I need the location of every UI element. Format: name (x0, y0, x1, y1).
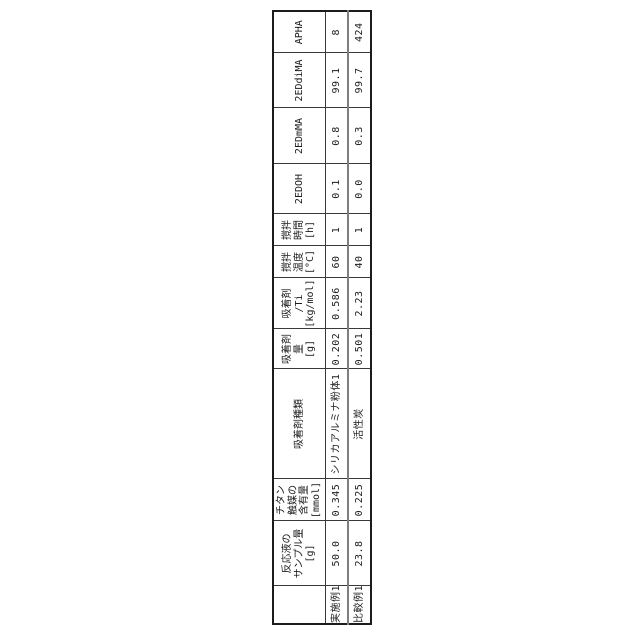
row-label-cell-comparative1: 比較例1 (348, 586, 371, 624)
rotated-table-figure: 反応液の サンプル量 [g] チタン 触媒の 含有量 [mmol] 吸着剤種類 … (272, 10, 372, 625)
header-cell-ti-catalyst-content: チタン 触媒の 含有量 [mmol] (273, 479, 325, 521)
header-line: 温度 (294, 247, 306, 278)
cell-example1-adsorbent-per-ti: 0.586 (325, 278, 348, 329)
page-canvas: { "figure": { "description_colors": { "b… (0, 0, 640, 640)
cell-comparative1-adsorbent-type: 活性炭 (348, 369, 371, 479)
patent-data-table: 反応液の サンプル量 [g] チタン 触媒の 含有量 [mmol] 吸着剤種類 … (272, 10, 372, 625)
header-line: [mmol] (311, 480, 323, 521)
header-cell-2edmma: 2EDmMA (273, 108, 325, 164)
header-line: APHA (294, 12, 306, 53)
header-line: 吸着剤 (282, 279, 294, 329)
cell-example1-adsorbent-type: シリカアルミナ粉体1 (325, 369, 348, 479)
header-line: [g] (305, 330, 317, 369)
header-line: 吸着剤 (282, 330, 294, 369)
table-row-comparative1: 比較例1 23.8 0.225 活性炭 0.501 2.23 40 1 0.0 … (348, 11, 371, 624)
cell-example1-2edoh: 0.1 (325, 164, 348, 214)
cell-example1-ti-catalyst-content: 0.345 (325, 479, 348, 521)
header-cell-2edoh: 2EDOH (273, 164, 325, 214)
cell-example1-apha: 8 (325, 11, 348, 53)
header-line: サンプル量 (294, 522, 306, 586)
header-line: [°C] (305, 247, 317, 278)
cell-comparative1-2edmma: 0.3 (348, 108, 371, 164)
cell-comparative1-2edoh: 0.0 (348, 164, 371, 214)
header-line: 吸着剤種類 (294, 370, 306, 479)
cell-example1-stir-time: 1 (325, 214, 348, 246)
header-line: /Ti (294, 279, 306, 329)
header-line: [h] (305, 215, 317, 246)
header-line: 反応液の (282, 522, 294, 586)
cell-comparative1-adsorbent-amount: 0.501 (348, 329, 371, 369)
row-label-cell-example1: 実施例1 (325, 586, 348, 624)
header-line: 含有量 (299, 480, 311, 521)
header-line: [g] (305, 522, 317, 586)
cell-example1-2eddima: 99.1 (325, 53, 348, 108)
header-line: 時間 (294, 215, 306, 246)
header-line: 撹拌 (282, 215, 294, 246)
cell-comparative1-adsorbent-per-ti: 2.23 (348, 278, 371, 329)
cell-comparative1-sample-amount: 23.8 (348, 521, 371, 586)
header-cell-stir-temperature: 撹拌 温度 [°C] (273, 246, 325, 278)
header-cell-2eddima: 2EDdiMA (273, 53, 325, 108)
header-line: 撹拌 (282, 247, 294, 278)
cell-example1-2edmma: 0.8 (325, 108, 348, 164)
header-cell-sample-amount: 反応液の サンプル量 [g] (273, 521, 325, 586)
header-line: 量 (294, 330, 306, 369)
header-line: 触媒の (288, 480, 300, 521)
cell-comparative1-ti-catalyst-content: 0.225 (348, 479, 371, 521)
header-line: チタン (276, 480, 288, 521)
header-line: [kg/mol] (305, 279, 317, 329)
header-cell-adsorbent-type: 吸着剤種類 (273, 369, 325, 479)
cell-comparative1-2eddima: 99.7 (348, 53, 371, 108)
corner-cell (273, 586, 325, 624)
cell-comparative1-stir-temperature: 40 (348, 246, 371, 278)
header-cell-adsorbent-amount: 吸着剤 量 [g] (273, 329, 325, 369)
cell-example1-adsorbent-amount: 0.202 (325, 329, 348, 369)
cell-example1-sample-amount: 50.0 (325, 521, 348, 586)
header-row: 反応液の サンプル量 [g] チタン 触媒の 含有量 [mmol] 吸着剤種類 … (273, 11, 325, 624)
table-row-example1: 実施例1 50.0 0.345 シリカアルミナ粉体1 0.202 0.586 6… (325, 11, 348, 624)
header-line: 2EDmMA (294, 109, 306, 164)
header-line: 2EDdiMA (294, 54, 306, 108)
header-line: 2EDOH (294, 165, 306, 214)
header-cell-stir-time: 撹拌 時間 [h] (273, 214, 325, 246)
cell-example1-stir-temperature: 60 (325, 246, 348, 278)
cell-comparative1-stir-time: 1 (348, 214, 371, 246)
cell-comparative1-apha: 424 (348, 11, 371, 53)
header-cell-apha: APHA (273, 11, 325, 53)
header-cell-adsorbent-per-ti: 吸着剤 /Ti [kg/mol] (273, 278, 325, 329)
